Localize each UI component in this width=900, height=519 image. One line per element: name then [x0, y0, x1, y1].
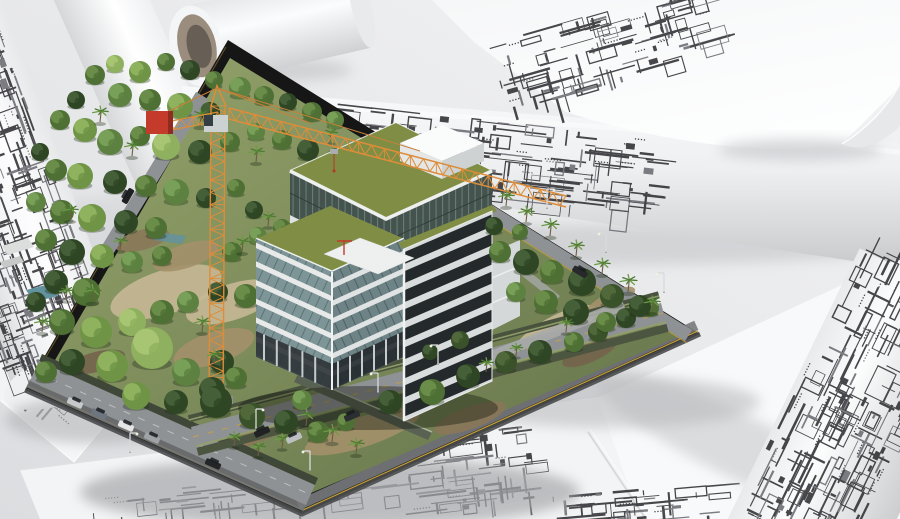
- architectural-model-photo: [0, 0, 900, 519]
- scene-canvas: [0, 0, 900, 519]
- crane-hook: [333, 170, 336, 173]
- crane-trolley: [330, 149, 338, 154]
